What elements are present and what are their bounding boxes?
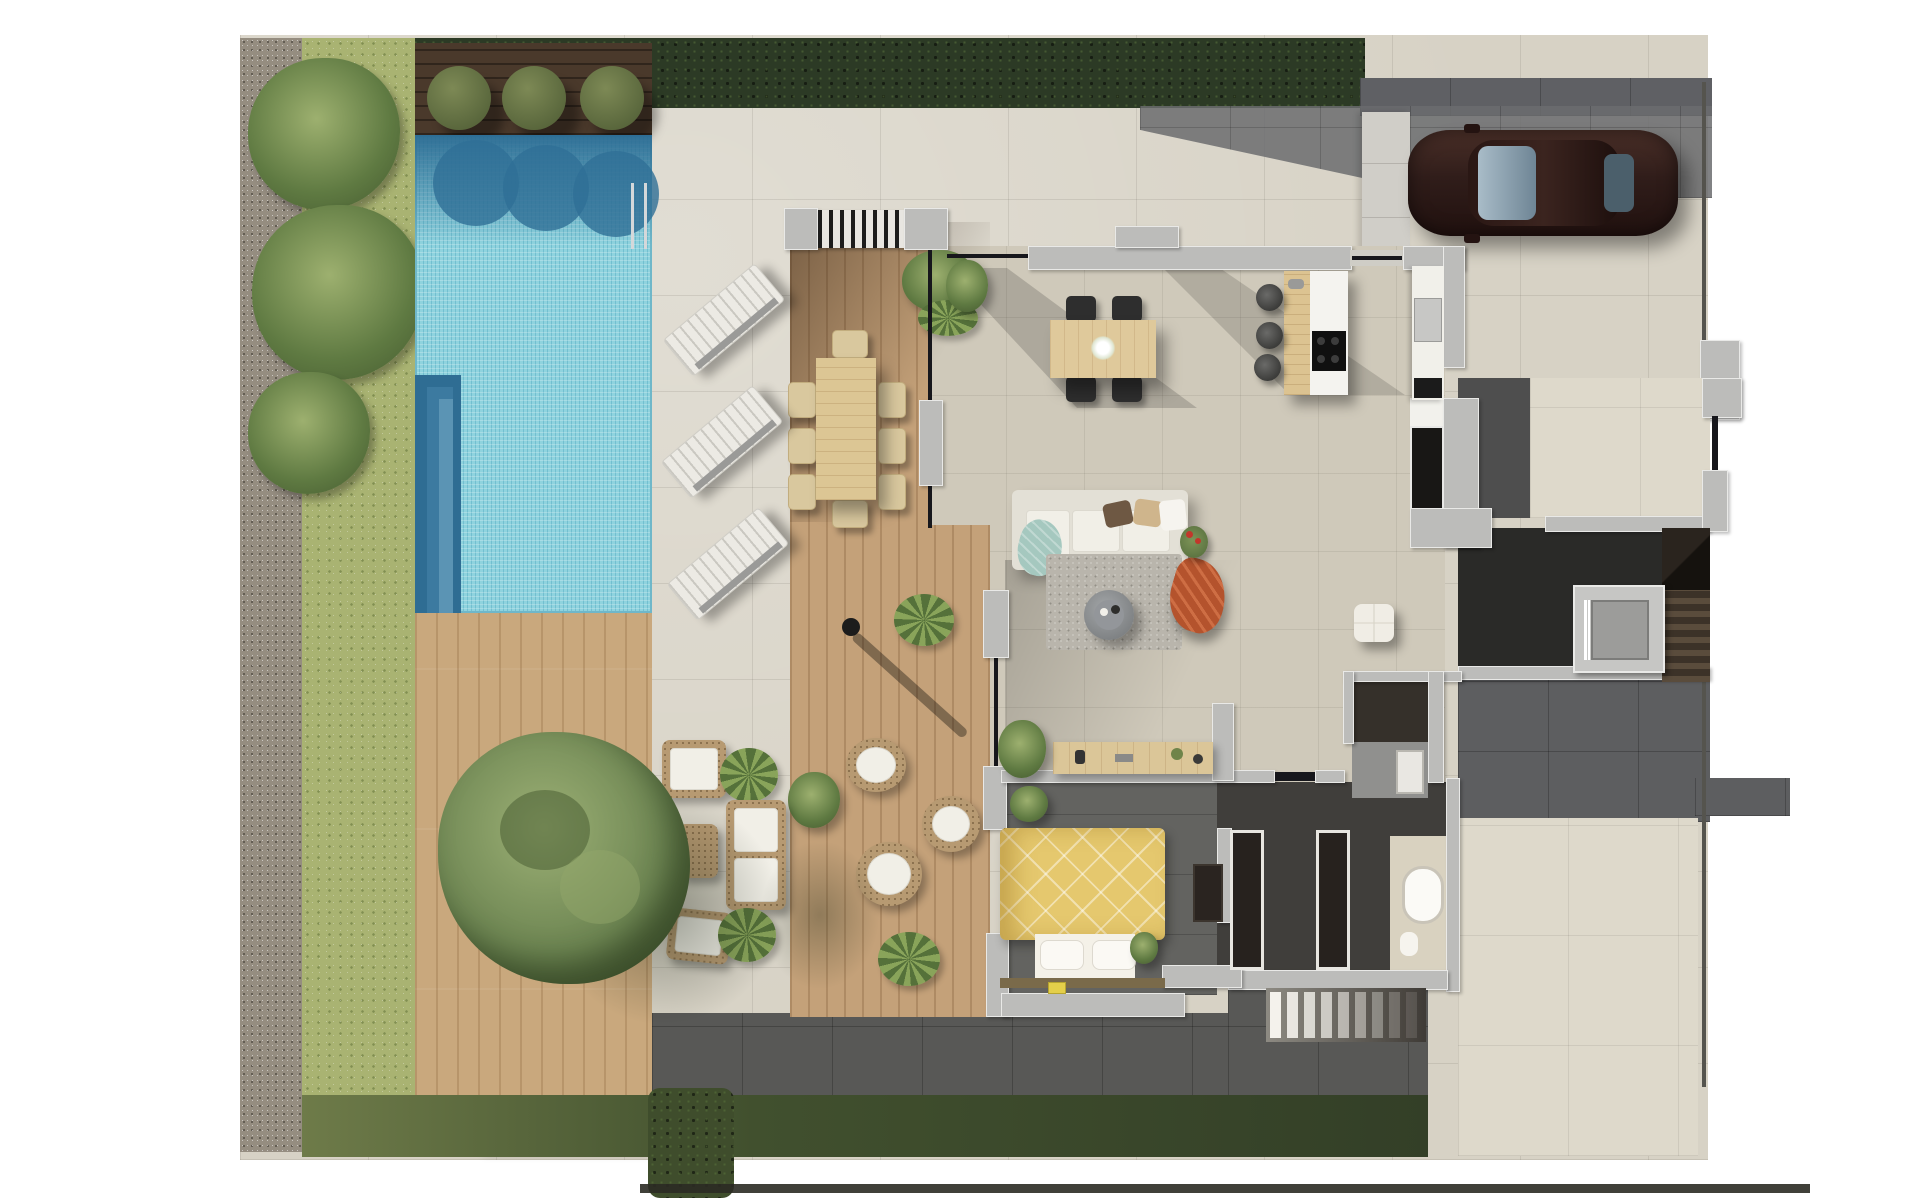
car-mirror bbox=[1464, 234, 1480, 243]
car bbox=[1408, 124, 1684, 244]
bathtub bbox=[1402, 866, 1444, 924]
staircase bbox=[1662, 590, 1710, 682]
tree-inner-foliage bbox=[560, 850, 640, 924]
kitchen-tall-cabinet bbox=[1410, 398, 1444, 428]
outdoor-dining-chair bbox=[878, 382, 906, 418]
pergola-pole bbox=[842, 618, 860, 636]
outdoor-dining-chair bbox=[788, 474, 816, 510]
wall-rooms-east bbox=[1428, 671, 1444, 783]
round-armchair bbox=[922, 796, 980, 852]
kitchen-wall-counter bbox=[1412, 266, 1444, 400]
round-armchair bbox=[856, 842, 922, 906]
outdoor-dining-chair bbox=[788, 428, 816, 464]
bed-duvet bbox=[1000, 828, 1165, 940]
dining-chair bbox=[1112, 376, 1142, 402]
car-windshield bbox=[1478, 146, 1536, 220]
lawn-south bbox=[302, 1095, 1428, 1157]
outdoor-dining-chair bbox=[832, 330, 868, 358]
wall-top-protrusion bbox=[1115, 226, 1179, 248]
bed bbox=[1000, 828, 1165, 988]
elevator-car bbox=[1591, 600, 1649, 660]
outdoor-dining-chair bbox=[832, 500, 868, 528]
window-entry-top bbox=[1352, 256, 1402, 260]
floorplan-render bbox=[0, 0, 1920, 1200]
elevator bbox=[1573, 585, 1665, 673]
elevator-door-line bbox=[1584, 600, 1587, 660]
wall-bedroom-south bbox=[1001, 993, 1185, 1017]
flower-pot bbox=[1180, 526, 1208, 558]
palm-tree bbox=[248, 58, 400, 210]
elevator-door-line bbox=[1588, 600, 1590, 660]
front-door bbox=[1712, 416, 1718, 472]
car-rear-window bbox=[1604, 154, 1634, 212]
entry-hall-floor bbox=[1530, 378, 1710, 518]
pool-shade bbox=[415, 135, 652, 245]
bush-shadow-in-pool bbox=[503, 145, 589, 231]
indoor-plant bbox=[998, 720, 1046, 778]
car-mirror bbox=[1464, 124, 1480, 133]
wall-living-south-b bbox=[1315, 770, 1345, 783]
window-top bbox=[947, 254, 1029, 258]
topiary-bush bbox=[502, 66, 566, 130]
dressing-floor bbox=[1352, 682, 1428, 742]
round-armchair bbox=[846, 738, 906, 792]
bed-headboard bbox=[1000, 978, 1165, 988]
oven-icon bbox=[1414, 298, 1442, 342]
counter-dark-section bbox=[1414, 378, 1442, 398]
bedroom-plant-small bbox=[1130, 932, 1158, 964]
wall-east-upper bbox=[1443, 246, 1465, 368]
bathroom-north-floor bbox=[1352, 742, 1428, 798]
shower-tray bbox=[1396, 750, 1424, 794]
wardrobe bbox=[1316, 830, 1350, 970]
bedroom-plant bbox=[1010, 786, 1048, 822]
lounge-sofa bbox=[726, 800, 786, 910]
wall-terrace-mid bbox=[919, 400, 943, 486]
console-sideboard bbox=[1053, 742, 1213, 774]
dining-chair bbox=[1112, 296, 1142, 322]
topiary-bush bbox=[427, 66, 491, 130]
bed-pillow bbox=[1040, 940, 1084, 970]
agave-plant bbox=[720, 748, 778, 802]
wall-ward-mid bbox=[1212, 703, 1234, 781]
palm-tree bbox=[248, 372, 370, 494]
side-path-stub bbox=[1695, 778, 1790, 816]
island-wood-top bbox=[1284, 271, 1310, 395]
wall-se-south bbox=[1228, 970, 1448, 990]
lounge-armchair bbox=[662, 740, 726, 798]
outdoor-dining-chair bbox=[788, 382, 816, 418]
wardrobe bbox=[1193, 864, 1223, 922]
outdoor-dining-chair bbox=[878, 428, 906, 464]
wall-lower-a bbox=[983, 590, 1009, 658]
flower-centerpiece-icon bbox=[1090, 336, 1116, 360]
bar-stool bbox=[1254, 354, 1281, 381]
hall-door bbox=[1275, 772, 1315, 781]
sliding-door-lower bbox=[994, 652, 998, 774]
outdoor-dining-chair bbox=[878, 474, 906, 510]
wall-se-east bbox=[1446, 778, 1460, 992]
toilet-icon bbox=[1400, 932, 1418, 956]
terrace-agave bbox=[878, 932, 940, 986]
topiary-bush bbox=[580, 66, 644, 130]
gravel-border bbox=[240, 38, 302, 1152]
pool-steps bbox=[439, 399, 453, 613]
yellow-book bbox=[1048, 982, 1066, 994]
terrace-agave bbox=[894, 594, 954, 646]
coffee-table bbox=[1084, 590, 1134, 640]
sliding-door-terrace bbox=[928, 250, 932, 528]
wall-dressing-west bbox=[1343, 671, 1354, 744]
driveway-dark-band bbox=[1360, 78, 1712, 116]
palm-tree bbox=[252, 205, 424, 380]
stair-landing bbox=[1662, 528, 1710, 590]
kitchen-island bbox=[1284, 271, 1348, 395]
pergola-post-block bbox=[784, 208, 818, 250]
wardrobe bbox=[1230, 830, 1264, 970]
white-pouf bbox=[1354, 604, 1394, 642]
wall-dressing-north bbox=[1343, 671, 1462, 682]
kitchen-tall-cabinet-black bbox=[1410, 426, 1444, 512]
terrace-palm bbox=[788, 772, 840, 828]
swimming-pool bbox=[415, 135, 652, 613]
bar-stool bbox=[1256, 284, 1283, 311]
dining-chair bbox=[1066, 376, 1096, 402]
outdoor-dining-table bbox=[816, 358, 876, 500]
cushion-white bbox=[1159, 499, 1188, 532]
south-bushes bbox=[648, 1088, 734, 1198]
agave-plant bbox=[718, 908, 776, 962]
dining-table bbox=[1050, 320, 1156, 378]
pergola-louvers bbox=[818, 210, 906, 248]
east-dark-court bbox=[1458, 676, 1710, 822]
wall-entry-north bbox=[1702, 378, 1742, 418]
wall-hall-cross bbox=[1410, 508, 1492, 548]
outdoor-stairs bbox=[1266, 988, 1426, 1042]
bathroom-se-floor bbox=[1390, 836, 1448, 970]
bar-stool bbox=[1256, 322, 1283, 349]
island-faucet-icon bbox=[1288, 279, 1304, 289]
induction-hob-icon bbox=[1312, 331, 1346, 371]
pergola-post-block bbox=[904, 208, 948, 250]
bottom-edge-line bbox=[640, 1184, 1810, 1193]
bush-shadow-in-pool bbox=[433, 140, 519, 226]
rear-patio bbox=[1458, 818, 1698, 1156]
pool-ladder-icon bbox=[631, 183, 647, 249]
dining-chair bbox=[1066, 296, 1096, 322]
wall-entry-south bbox=[1702, 470, 1728, 532]
wall-top-main bbox=[1028, 246, 1352, 270]
indoor-plant bbox=[946, 260, 988, 312]
